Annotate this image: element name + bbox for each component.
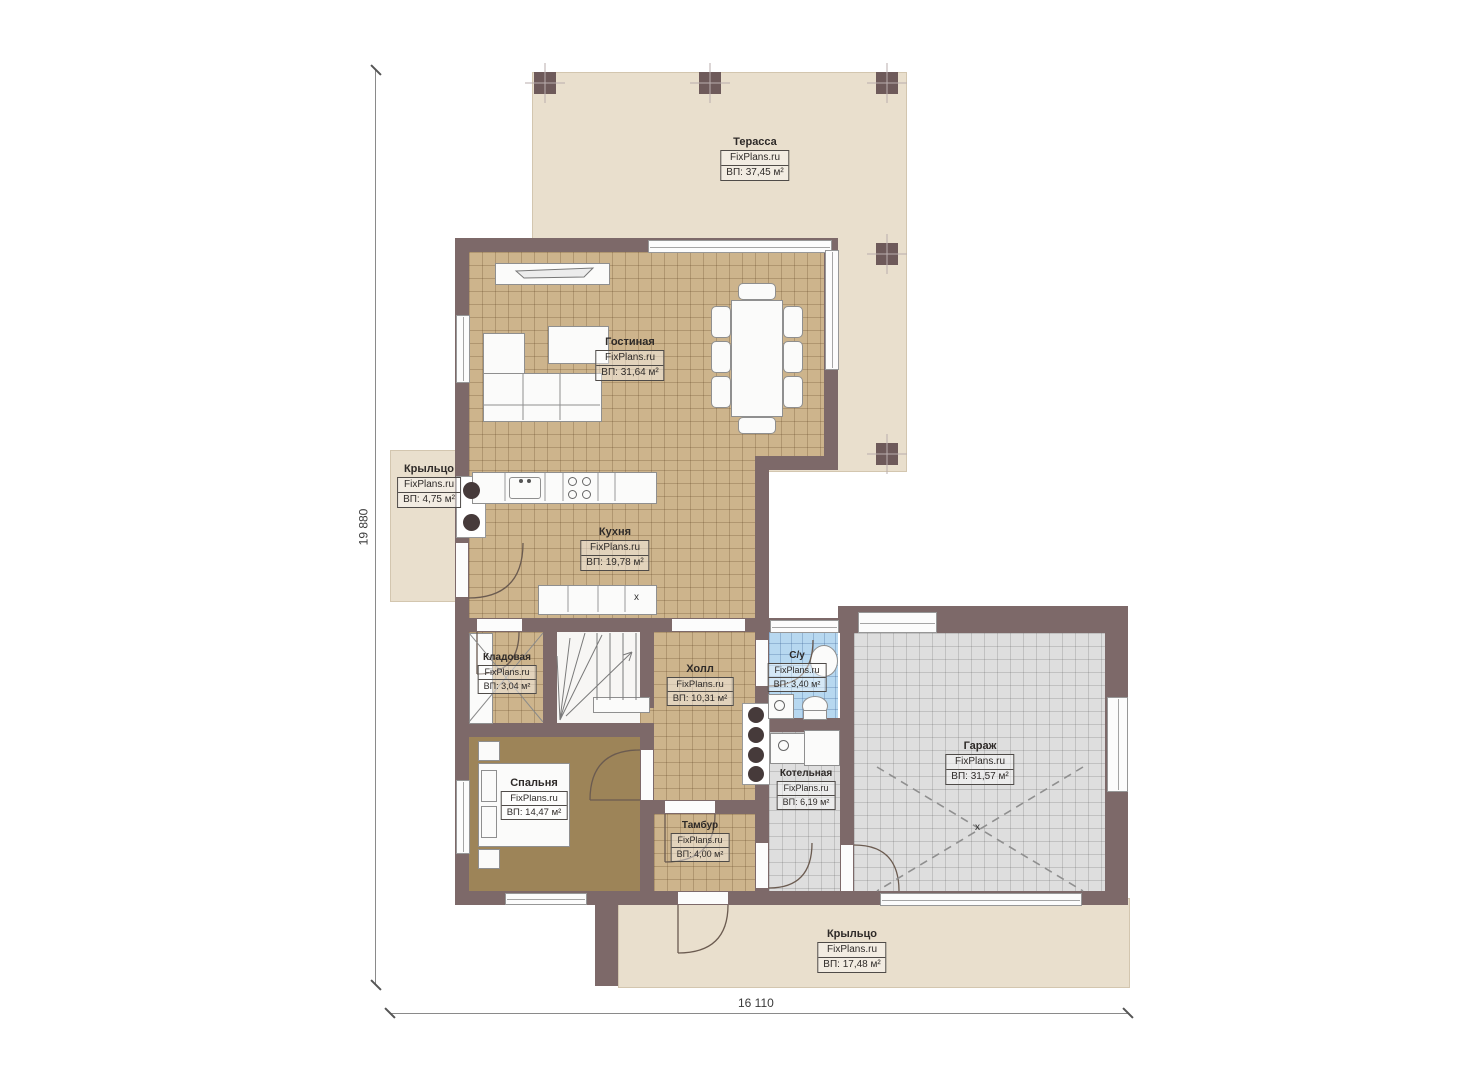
door-opening-storage [477, 619, 522, 631]
brand-text: FixPlans.ru [479, 666, 536, 680]
dining-chair [738, 283, 776, 300]
room-label-kitchen: Кухня FixPlans.ru ВП: 19,78 м² [580, 526, 649, 571]
dimension-tick [370, 64, 381, 75]
room-info-box: FixPlans.ru ВП: 31,57 м² [945, 754, 1014, 785]
garage-door [880, 893, 1082, 906]
room-label-bathroom: С/у FixPlans.ru ВП: 3,40 м² [768, 650, 827, 692]
wall-storage-stairs [543, 632, 557, 723]
brand-text: FixPlans.ru [769, 664, 826, 678]
door-opening-tambour-boiler [756, 843, 768, 888]
toilet-tank [803, 710, 827, 720]
room-area: ВП: 19,78 м² [581, 556, 648, 570]
room-name: С/у [789, 650, 805, 661]
room-area: ВП: 4,75 м² [398, 493, 460, 507]
door-opening-boiler-garage [841, 845, 853, 891]
room-area: ВП: 14,47 м² [502, 806, 567, 819]
dimension-tick [370, 979, 381, 990]
brand-text: FixPlans.ru [721, 151, 788, 166]
terrace-pillar [876, 443, 898, 465]
floor-plan: x x [0, 0, 1474, 1080]
dimension-label-width: 16 110 [738, 996, 774, 1010]
window-garage-right [1107, 697, 1128, 792]
dining-chair [711, 306, 731, 338]
kitchen-counter [472, 472, 657, 504]
room-label-porch-left: Крыльцо FixPlans.ru ВП: 4,75 м² [397, 463, 461, 508]
dining-chair [783, 306, 803, 338]
room-area: ВП: 10,31 м² [668, 692, 733, 705]
door-opening-bathroom [756, 640, 768, 686]
brand-text: FixPlans.ru [946, 755, 1013, 770]
brand-text: FixPlans.ru [596, 351, 663, 366]
door-opening-hall-tambour [665, 801, 715, 813]
heating-pipe [748, 707, 764, 723]
boiler-burner [778, 740, 789, 751]
garage-center-marker: x [975, 822, 980, 833]
room-info-box: FixPlans.ru ВП: 31,64 м² [595, 350, 664, 381]
dining-chair [738, 417, 776, 434]
terrace-sliding-door [825, 250, 839, 370]
room-info-box: FixPlans.ru ВП: 17,48 м² [817, 942, 886, 973]
room-label-bedroom: Спальня FixPlans.ru ВП: 14,47 м² [501, 777, 568, 820]
room-info-box: FixPlans.ru ВП: 37,45 м² [720, 150, 789, 181]
dining-chair [711, 376, 731, 408]
room-area: ВП: 3,40 м² [769, 678, 826, 691]
nightstand [478, 849, 500, 869]
stove-burner [582, 477, 591, 486]
room-info-box: FixPlans.ru ВП: 3,04 м² [478, 665, 537, 694]
room-label-tambour: Тамбур FixPlans.ru ВП: 4,00 м² [671, 820, 730, 862]
dining-chair [711, 341, 731, 373]
water-heater [804, 730, 840, 766]
room-name: Терасса [733, 136, 777, 148]
dining-table [731, 300, 783, 417]
room-name: Гараж [964, 740, 997, 752]
room-area: ВП: 6,19 м² [778, 796, 835, 809]
room-label-garage: Гараж FixPlans.ru ВП: 31,57 м² [945, 740, 1014, 785]
room-area: ВП: 3,04 м² [479, 680, 536, 693]
room-label-hall: Холл FixPlans.ru ВП: 10,31 м² [667, 663, 734, 706]
room-label-living: Гостиная FixPlans.ru ВП: 31,64 м² [595, 336, 664, 381]
bed-pillow [481, 770, 497, 802]
window-garage-top [858, 612, 937, 633]
brand-text: FixPlans.ru [778, 782, 835, 796]
room-label-porch-bottom: Крыльцо FixPlans.ru ВП: 17,48 м² [817, 928, 886, 973]
dimension-label-height: 19 880 [356, 509, 370, 546]
brand-text: FixPlans.ru [818, 943, 885, 958]
room-name: Гостиная [605, 336, 655, 348]
door-opening-tambour-porch [678, 892, 728, 904]
room-name: Спальня [510, 777, 558, 789]
wall-bedroom-top [455, 723, 654, 737]
stove-burner [582, 490, 591, 499]
room-name: Крыльцо [404, 463, 454, 475]
room-name: Холл [686, 663, 714, 675]
door-opening-porch-kitchen [456, 543, 468, 597]
nightstand [478, 741, 500, 761]
room-name: Крыльцо [827, 928, 877, 940]
door-opening-bedroom [641, 750, 653, 800]
dimension-line-horizontal [390, 1013, 1128, 1014]
room-info-box: FixPlans.ru ВП: 3,40 м² [768, 663, 827, 692]
dining-chair [783, 376, 803, 408]
window-bedroom-left [456, 780, 470, 854]
stairs-rail [593, 697, 650, 713]
room-area: ВП: 37,45 м² [721, 166, 788, 180]
room-area: ВП: 31,64 м² [596, 366, 663, 380]
window-living-left [456, 315, 470, 383]
room-name: Котельная [780, 768, 832, 779]
kitchen-island-marker: x [634, 592, 639, 603]
stove-burner [568, 490, 577, 499]
washing-machine-drum [774, 700, 785, 711]
dining-chair [783, 341, 803, 373]
terrace-pillar [699, 72, 721, 94]
sofa [483, 373, 602, 422]
kitchen-sink [509, 477, 541, 499]
room-info-box: FixPlans.ru ВП: 14,47 м² [501, 791, 568, 820]
terrace-pillar [876, 72, 898, 94]
porch-column [463, 514, 480, 531]
bed-pillow [481, 806, 497, 838]
room-area: ВП: 4,00 м² [672, 848, 729, 861]
stove-burner [568, 477, 577, 486]
opening-kitchen-hall [672, 619, 745, 631]
room-info-box: FixPlans.ru ВП: 4,75 м² [397, 477, 461, 508]
brand-text: FixPlans.ru [502, 792, 567, 806]
heating-pipe [748, 727, 764, 743]
window-bedroom-bottom [505, 893, 587, 905]
room-name: Кухня [599, 526, 631, 538]
room-info-box: FixPlans.ru ВП: 10,31 м² [667, 677, 734, 706]
hall-floor [640, 632, 755, 814]
brand-text: FixPlans.ru [581, 541, 648, 556]
room-info-box: FixPlans.ru ВП: 6,19 м² [777, 781, 836, 810]
kitchen-island [538, 585, 657, 615]
room-label-boiler: Котельная FixPlans.ru ВП: 6,19 м² [777, 768, 836, 810]
room-area: ВП: 31,57 м² [946, 770, 1013, 784]
window-living-top [648, 240, 832, 253]
terrace-pillar [534, 72, 556, 94]
porch-column [463, 482, 480, 499]
heating-pipe [748, 766, 764, 782]
room-name: Кладовая [483, 652, 531, 663]
room-label-terrace: Терасса FixPlans.ru ВП: 37,45 м² [720, 136, 789, 181]
window-bathroom-top [770, 620, 839, 633]
wall-porch-stub [595, 898, 618, 986]
dimension-line-vertical [375, 70, 376, 985]
room-info-box: FixPlans.ru ВП: 19,78 м² [580, 540, 649, 571]
brand-text: FixPlans.ru [672, 834, 729, 848]
brand-text: FixPlans.ru [668, 678, 733, 692]
room-area: ВП: 17,48 м² [818, 958, 885, 972]
room-info-box: FixPlans.ru ВП: 4,00 м² [671, 833, 730, 862]
brand-text: FixPlans.ru [398, 478, 460, 493]
room-name: Тамбур [682, 820, 718, 831]
heating-pipe [748, 747, 764, 763]
tv-cabinet [495, 263, 610, 285]
terrace-pillar [876, 243, 898, 265]
room-label-storage: Кладовая FixPlans.ru ВП: 3,04 м² [478, 652, 537, 694]
